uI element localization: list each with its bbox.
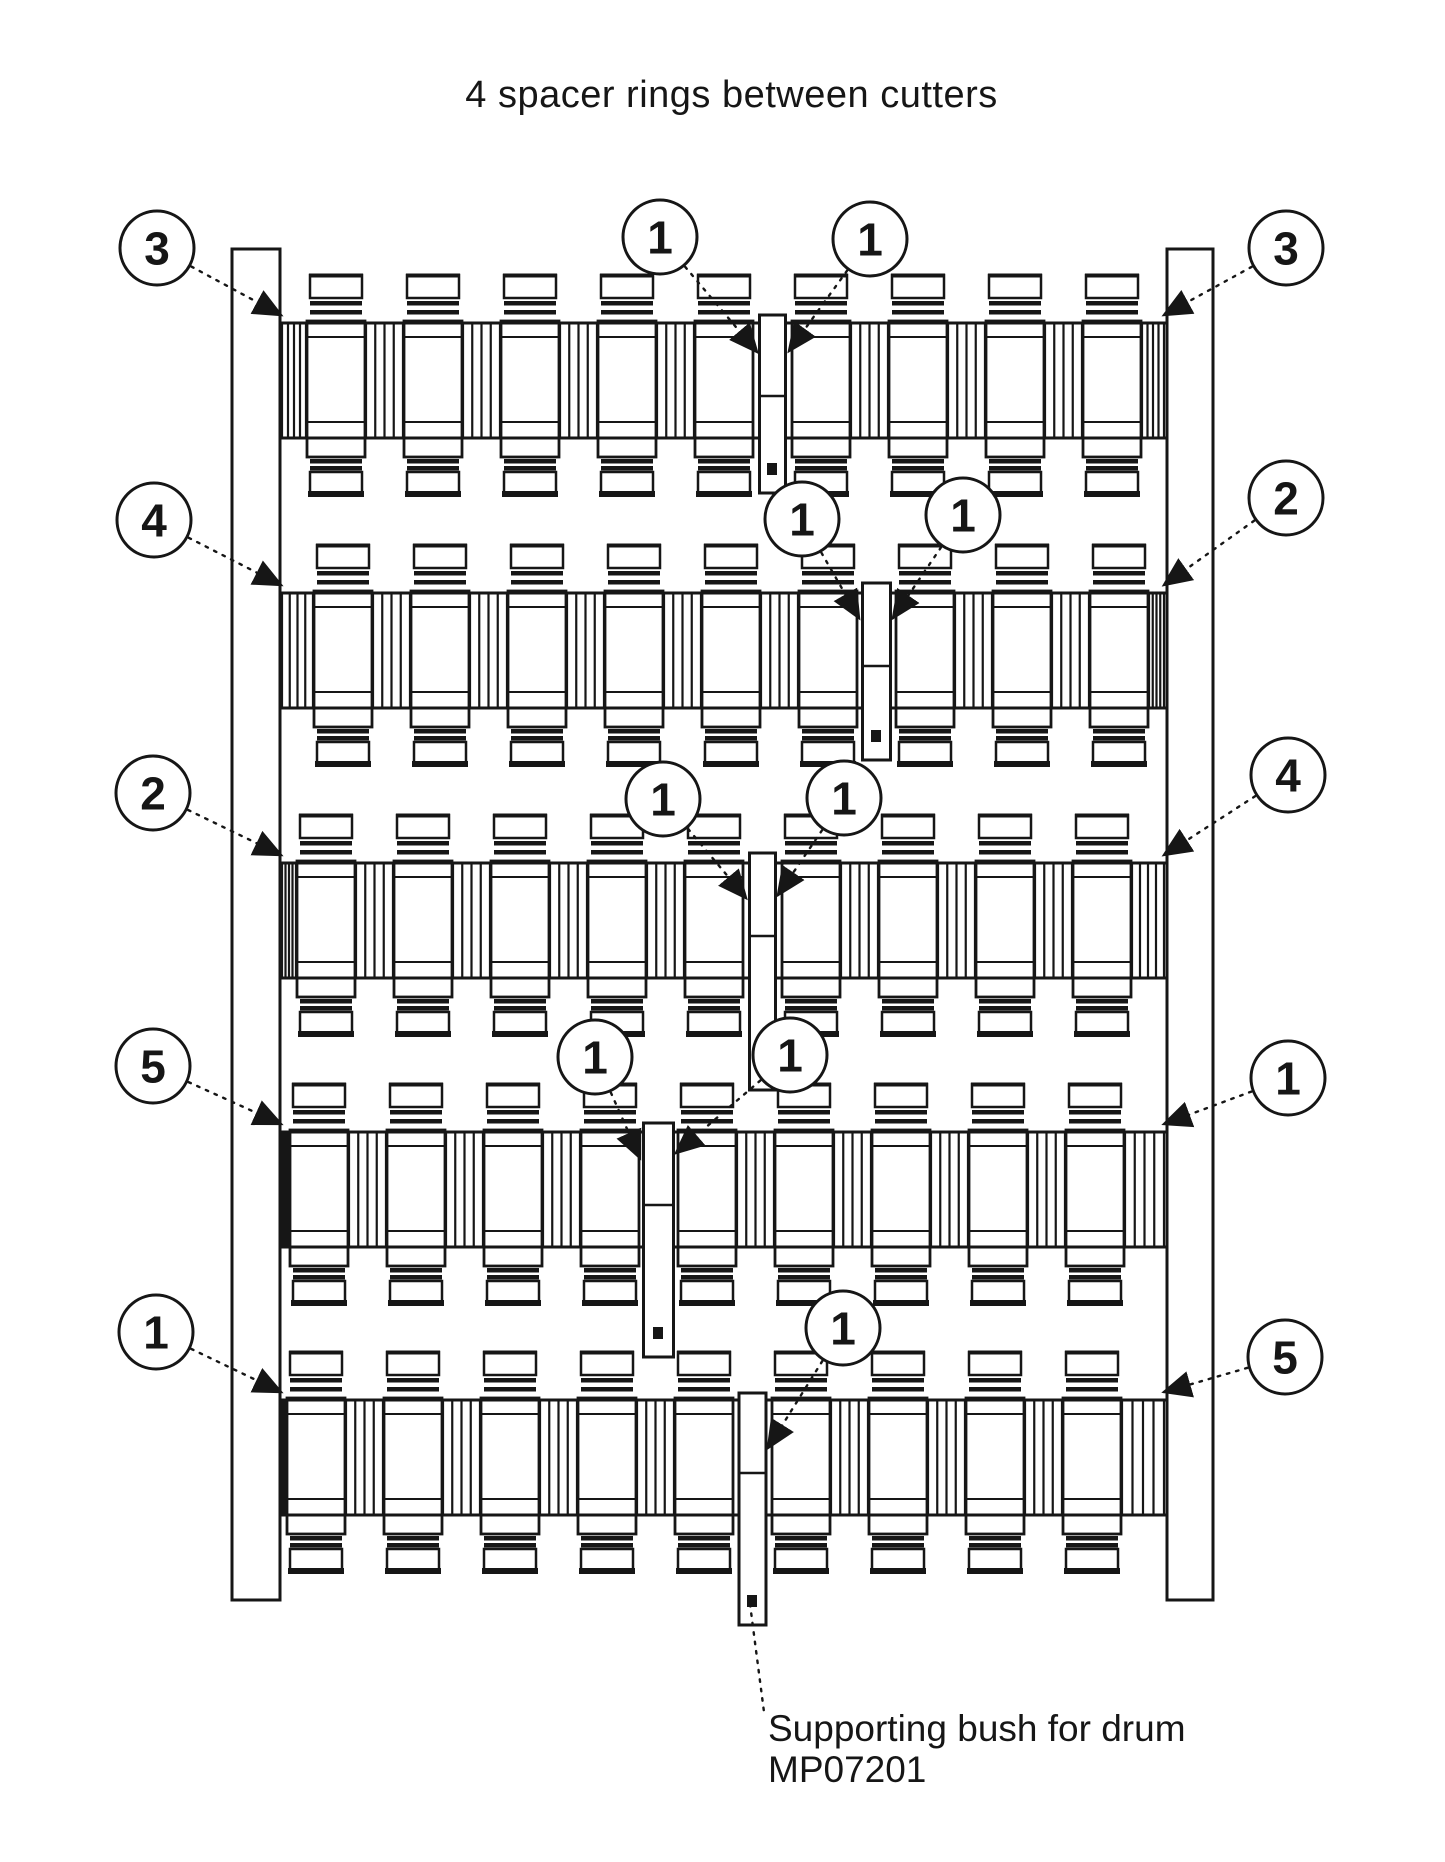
callout-label: 1	[789, 494, 815, 546]
cutter	[772, 1352, 830, 1574]
spacer-rings	[1035, 864, 1072, 979]
cutter	[976, 815, 1034, 1037]
callout-label: 1	[857, 214, 883, 266]
cutter	[879, 815, 937, 1037]
cutter	[605, 545, 663, 767]
spacer-rings	[1132, 864, 1164, 979]
spacer-rings	[831, 1401, 868, 1516]
cutter	[695, 275, 753, 497]
cutter-drum-assembly	[232, 249, 1213, 1625]
spacer-rings	[540, 1401, 577, 1516]
cutter	[1090, 545, 1148, 767]
cutter	[1083, 275, 1141, 497]
supporting-bush	[760, 315, 786, 493]
spacer-rings	[834, 1133, 871, 1248]
cutter	[411, 545, 469, 767]
spacer-rings	[1045, 324, 1082, 439]
cutter	[986, 275, 1044, 497]
spacer-rings	[1125, 1133, 1164, 1248]
spacer-rings	[550, 864, 587, 979]
cutter	[508, 545, 566, 767]
spacer-rings	[664, 594, 701, 709]
spacer-rings	[647, 864, 684, 979]
cutter	[702, 545, 760, 767]
spacer-rings	[938, 864, 975, 979]
cutter	[501, 275, 559, 497]
spacer-rings	[446, 1133, 483, 1248]
spacer-rings	[282, 1133, 289, 1248]
callout-label: 1	[1275, 1053, 1301, 1105]
spacer-rings	[761, 594, 798, 709]
cutter	[387, 1084, 445, 1306]
spacer-rings	[560, 324, 597, 439]
cutter	[872, 1084, 930, 1306]
spacer-rings	[737, 1133, 774, 1248]
spacer-rings	[1142, 324, 1164, 439]
spacer-rings	[841, 864, 878, 979]
spacer-rings	[373, 594, 410, 709]
spacer-rings	[282, 594, 313, 709]
spacer-rings	[931, 1133, 968, 1248]
cutter	[290, 1084, 348, 1306]
callout-label: 4	[141, 495, 167, 547]
side-plate-right	[1167, 249, 1213, 1600]
spacer-rings	[1028, 1133, 1065, 1248]
cutter	[1066, 1084, 1124, 1306]
spacer-rings	[282, 864, 296, 979]
cutter	[799, 545, 857, 767]
diagram-canvas: 4 spacer rings between cutters 342513241…	[0, 0, 1445, 1862]
spacer-rings	[443, 1401, 480, 1516]
cutter	[491, 815, 549, 1037]
supporting-bush	[863, 583, 891, 760]
spacer-rings	[282, 324, 306, 439]
caption-line1: Supporting bush for drum	[768, 1708, 1186, 1749]
spacer-rings	[356, 864, 393, 979]
callout-label: 1	[650, 774, 676, 826]
cutter	[581, 1084, 639, 1306]
cutter	[678, 1084, 736, 1306]
spacer-rings	[1025, 1401, 1062, 1516]
cutter-row-2	[280, 545, 1167, 767]
spacer-rings	[928, 1401, 965, 1516]
spacer-rings	[567, 594, 604, 709]
supporting-bush	[644, 1123, 674, 1357]
spacer-rings	[282, 1401, 286, 1516]
callout-label: 5	[1272, 1332, 1298, 1384]
cutter	[484, 1084, 542, 1306]
cutter-row-1	[280, 275, 1167, 497]
spacer-rings	[1149, 594, 1164, 709]
callout-label: 2	[140, 768, 166, 820]
cutter	[993, 545, 1051, 767]
callout-label: 4	[1275, 750, 1301, 802]
spacer-rings	[851, 324, 888, 439]
spacer-rings	[543, 1133, 580, 1248]
cutter	[578, 1352, 636, 1574]
spacer-rings	[453, 864, 490, 979]
cutter	[969, 1084, 1027, 1306]
callout-label: 1	[831, 773, 857, 825]
cutter	[287, 1352, 345, 1574]
cutter	[1063, 1352, 1121, 1574]
callout-label: 1	[143, 1307, 169, 1359]
spacer-rings	[463, 324, 500, 439]
cutter	[588, 815, 646, 1037]
cutter	[792, 275, 850, 497]
cutter	[869, 1352, 927, 1574]
callout-label: 1	[647, 212, 673, 264]
cutter	[394, 815, 452, 1037]
supporting-bush	[739, 1393, 766, 1625]
cutter	[598, 275, 656, 497]
spacer-rings	[948, 324, 985, 439]
cutter-row-4	[280, 1084, 1167, 1357]
spacer-rings	[346, 1401, 383, 1516]
spacer-rings	[637, 1401, 674, 1516]
callout-label: 1	[582, 1032, 608, 1084]
cutter	[685, 815, 743, 1037]
cutter	[404, 275, 462, 497]
spacer-rings	[470, 594, 507, 709]
cutter	[889, 275, 947, 497]
spacer-rings	[1052, 594, 1089, 709]
cutter	[307, 275, 365, 497]
spacer-rings	[1122, 1401, 1164, 1516]
callout-label: 3	[1273, 223, 1299, 275]
caption: Supporting bush for drum MP07201	[768, 1708, 1186, 1791]
assembly-drawing: 3425132415111111111	[0, 0, 1445, 1862]
spacer-rings	[349, 1133, 386, 1248]
caption-line2: MP07201	[768, 1749, 1186, 1790]
callout-label: 1	[777, 1030, 803, 1082]
cutter	[297, 815, 355, 1037]
cutter-row-5	[280, 1352, 1167, 1625]
spacer-rings	[657, 324, 694, 439]
cutter	[314, 545, 372, 767]
cutter	[896, 545, 954, 767]
cutter	[481, 1352, 539, 1574]
callout-label: 1	[950, 490, 976, 542]
cutter	[775, 1084, 833, 1306]
spacer-rings	[366, 324, 403, 439]
cutter	[966, 1352, 1024, 1574]
callout-label: 1	[830, 1303, 856, 1355]
cutter-row-3	[280, 815, 1167, 1090]
cutter	[384, 1352, 442, 1574]
cutter	[675, 1352, 733, 1574]
spacer-rings	[955, 594, 992, 709]
callout-label: 3	[144, 223, 170, 275]
callout-label: 2	[1273, 473, 1299, 525]
cutter	[1073, 815, 1131, 1037]
callout-label: 5	[140, 1041, 166, 1093]
